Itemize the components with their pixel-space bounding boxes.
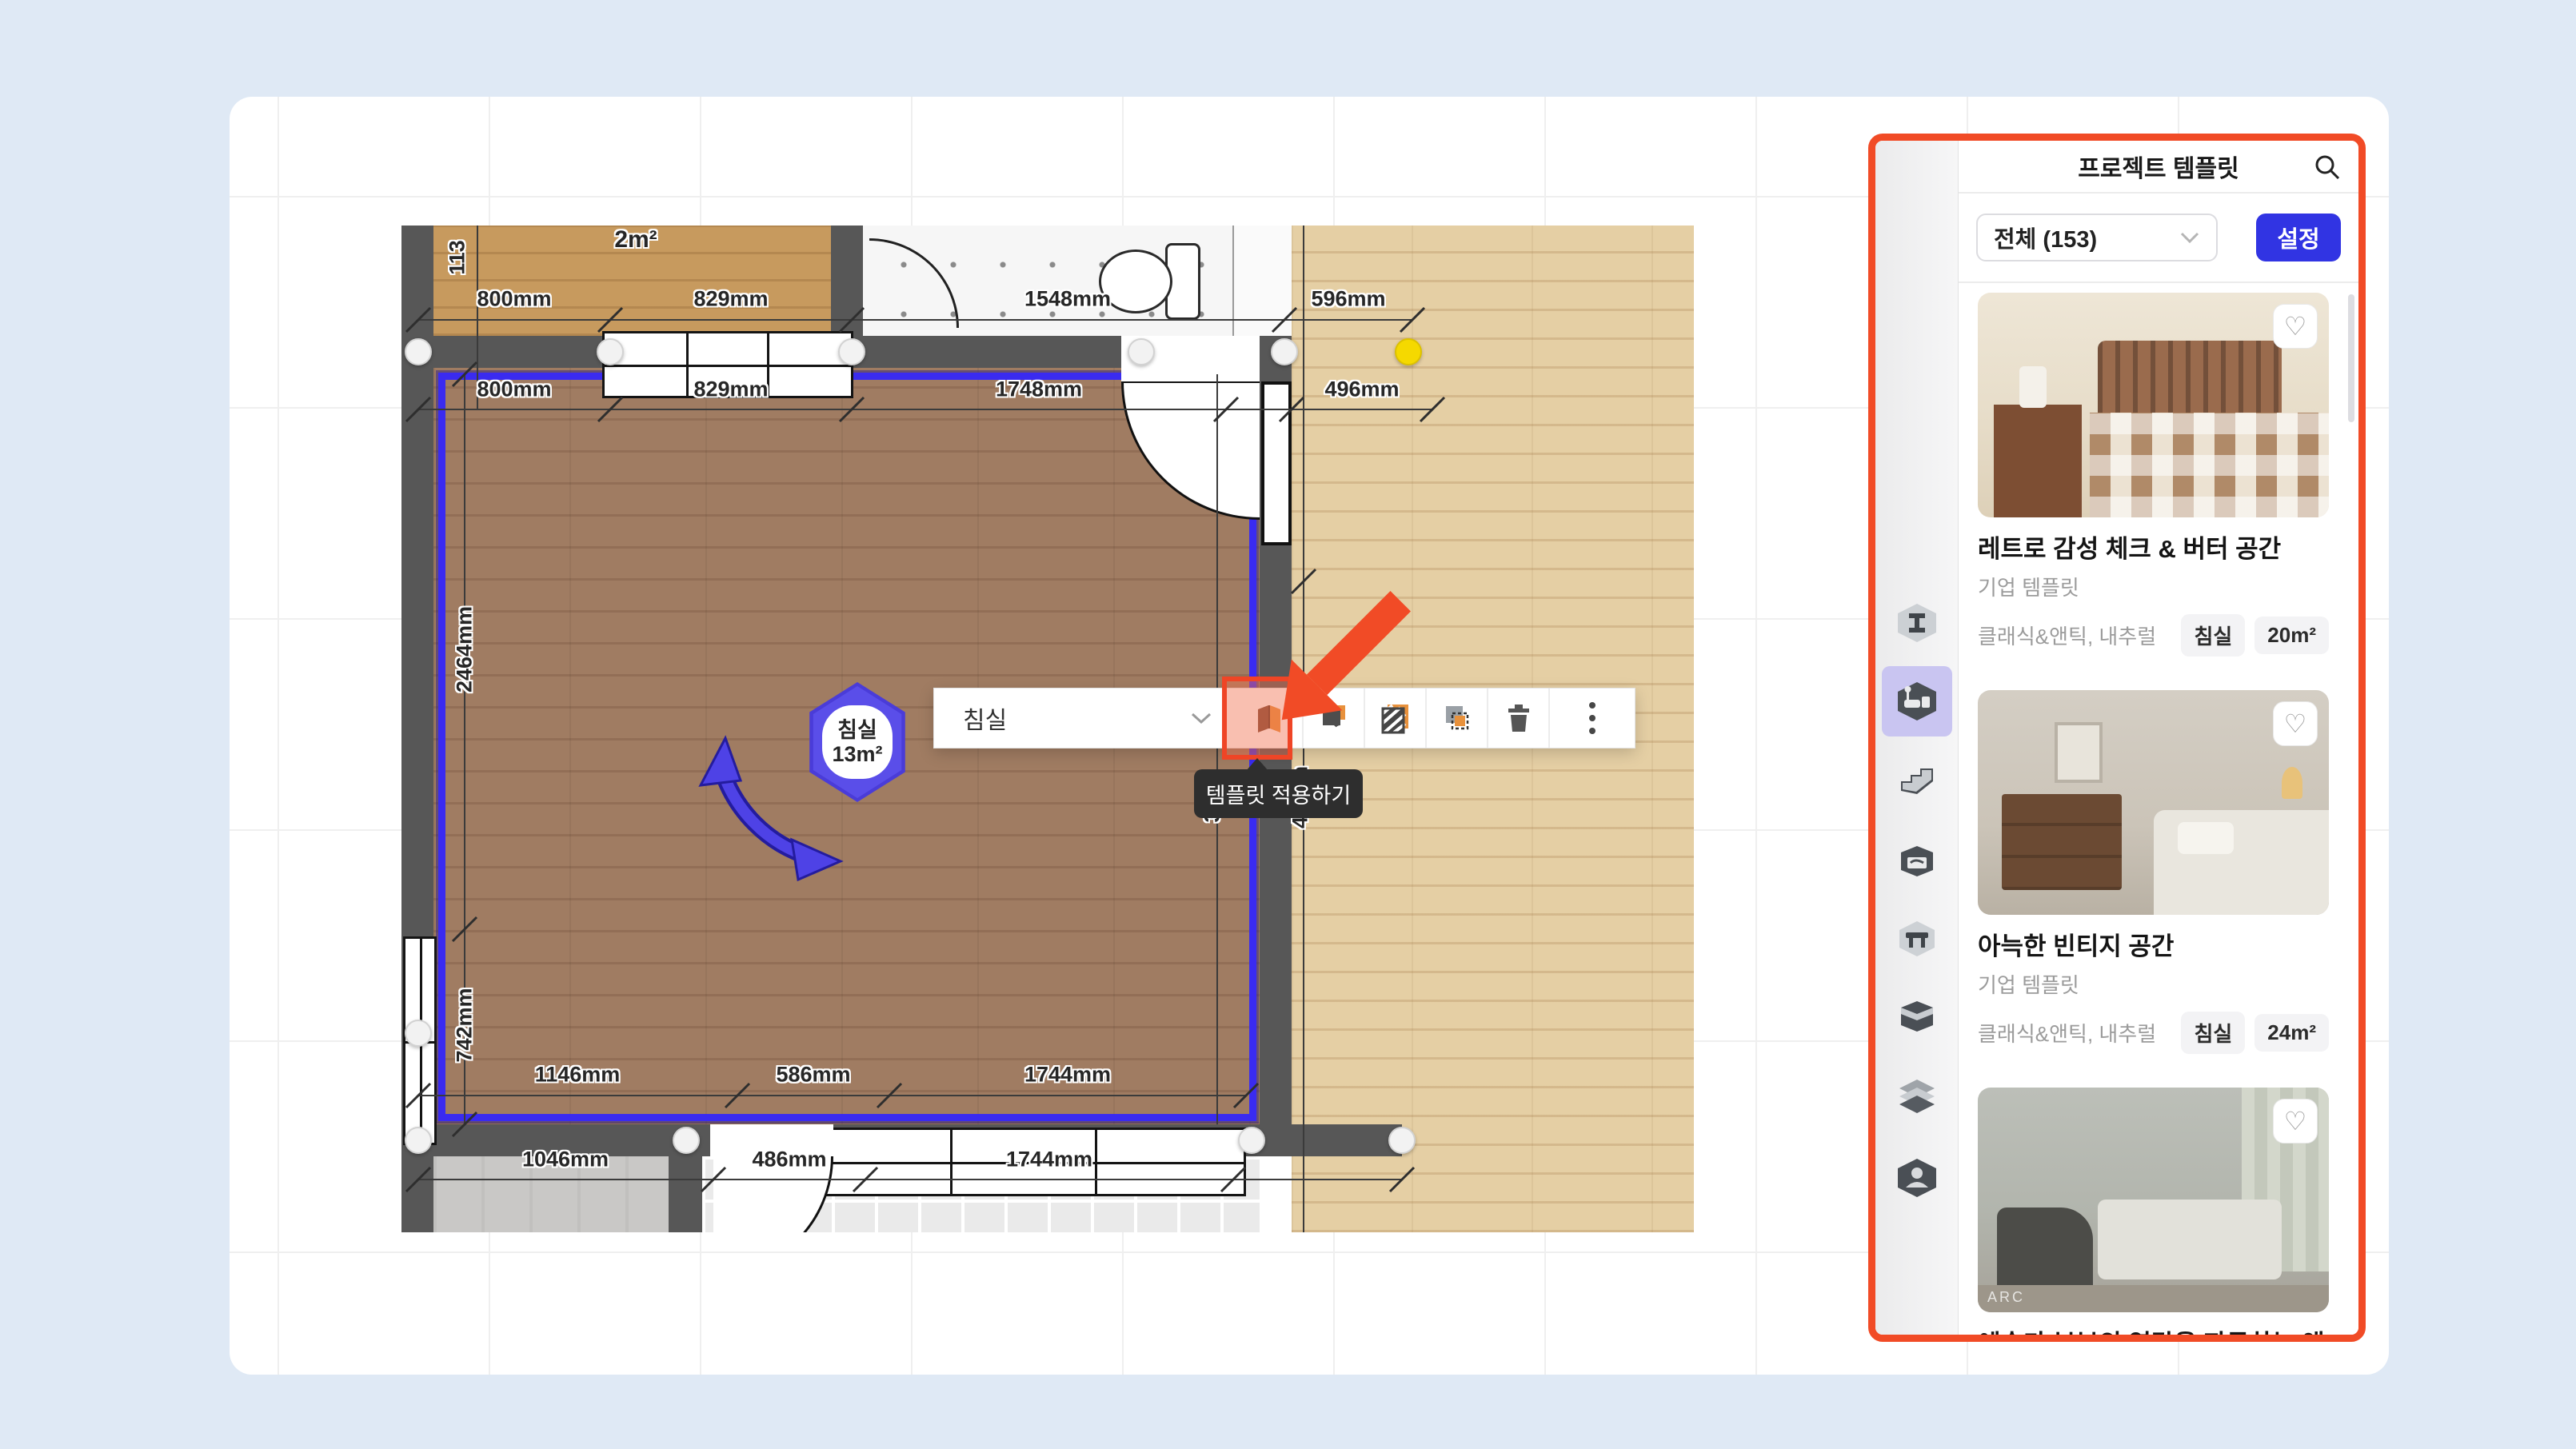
- dimension-label: 586mm: [776, 1063, 850, 1088]
- thumb-frame: [2055, 722, 2103, 783]
- layers-icon: [1895, 1073, 1939, 1118]
- room-badge[interactable]: 침실 13m²: [805, 682, 909, 802]
- wall-node[interactable]: [1128, 338, 1155, 365]
- room-type-badge: 침실: [2181, 614, 2245, 657]
- dimension-label: 829mm: [693, 287, 768, 312]
- chevron-down-icon: [1189, 711, 1213, 725]
- template-panel: 프로젝트 템플릿 전체 (153) 설정: [1868, 134, 2366, 1342]
- storage-box-icon: [1895, 995, 1939, 1040]
- build-material-icon: [1895, 601, 1939, 645]
- dimension-label: 1548mm: [1024, 287, 1111, 312]
- trash-icon: [1503, 702, 1535, 734]
- dimension-label: 1748mm: [996, 377, 1082, 402]
- template-title: 레트로 감성 체크 & 버터 공간: [1978, 533, 2329, 565]
- sidebar-item-stairs[interactable]: [1891, 756, 1943, 807]
- category-value: 전체 (153): [1994, 221, 2097, 254]
- material-icon: [1380, 702, 1412, 734]
- template-meta-row: 클래식&앤틱, 내추럴 침실 24m²: [1978, 1012, 2329, 1054]
- area-badge: 20m²: [2254, 617, 2329, 654]
- category-dropdown[interactable]: 전체 (153): [1976, 214, 2218, 261]
- thumb-bed: [2098, 1200, 2282, 1279]
- sidebar-item-room-template[interactable]: [1891, 676, 1943, 727]
- template-style: 클래식&앤틱, 내추럴: [1978, 1018, 2171, 1048]
- template-title: 아늑한 빈티지 공간: [1978, 931, 2329, 963]
- template-card[interactable]: ARC ♡ 예술가 부부의 영감을 자극하는 앤틱한 침실 기업 템플릿 클래식…: [1978, 1088, 2329, 1335]
- duplicate-icon: [1441, 702, 1473, 734]
- sidebar-item-build-material[interactable]: [1891, 597, 1943, 649]
- filter-row: 전체 (153) 설정: [1959, 194, 2358, 283]
- dimension-label: 486mm: [752, 1148, 826, 1172]
- duplicate-button[interactable]: [1425, 689, 1487, 748]
- template-subtitle: 기업 템플릿: [1978, 572, 2329, 601]
- thumb-lamp: [2282, 767, 2302, 799]
- wall-node[interactable]: [405, 1020, 432, 1047]
- more-options-button[interactable]: [1548, 689, 1635, 748]
- material-button[interactable]: [1364, 689, 1425, 748]
- room-name: 침실: [837, 718, 877, 742]
- template-card[interactable]: ♡ 아늑한 빈티지 공간 기업 템플릿 클래식&앤틱, 내추럴 침실 24m²: [1978, 690, 2329, 1054]
- scrollbar-thumb[interactable]: [2348, 294, 2354, 422]
- favorite-button[interactable]: ♡: [2273, 1099, 2318, 1144]
- wall-node[interactable]: [405, 338, 432, 365]
- sidebar-item-storage-box[interactable]: [1891, 992, 1943, 1043]
- template-thumbnail: ♡: [1978, 690, 2329, 915]
- favorite-button[interactable]: ♡: [2273, 304, 2318, 349]
- wall-node[interactable]: [597, 338, 624, 365]
- thumb-floor: [1978, 1285, 2329, 1312]
- favorite-button[interactable]: ♡: [2273, 701, 2318, 746]
- dimension-label: 596mm: [1311, 287, 1385, 312]
- sidebar-item-profile[interactable]: [1891, 1152, 1943, 1204]
- wall-node[interactable]: [673, 1127, 700, 1154]
- template-list[interactable]: ♡ 레트로 감성 체크 & 버터 공간 기업 템플릿 클래식&앤틱, 내추럴 침…: [1959, 283, 2358, 1335]
- sidebar-item-toolbox[interactable]: [1891, 835, 1943, 886]
- thumb-bed: [2090, 413, 2329, 517]
- template-title: 예술가 부부의 영감을 자극하는 앤틱한 침실: [1978, 1328, 2329, 1335]
- editor-window: 800mm 829mm 1548mm 596mm 800mm 829mm 174…: [230, 97, 2389, 1375]
- room-area: 13m²: [832, 742, 882, 766]
- sidebar-item-furniture[interactable]: [1891, 913, 1943, 964]
- template-thumbnail: ♡: [1978, 293, 2329, 517]
- panel-title: 프로젝트 템플릿: [2078, 149, 2239, 184]
- dimension-label: 1046mm: [522, 1148, 609, 1172]
- wall-node[interactable]: [1388, 1127, 1416, 1154]
- wall-node[interactable]: [838, 338, 865, 365]
- room-type-badge: 침실: [2181, 1012, 2245, 1054]
- dimension-label: 742mm: [453, 988, 477, 1062]
- dimension-label: 113: [445, 240, 470, 275]
- template-card[interactable]: ♡ 레트로 감성 체크 & 버터 공간 기업 템플릿 클래식&앤틱, 내추럴 침…: [1978, 293, 2329, 657]
- profile-icon: [1895, 1156, 1939, 1200]
- panel-header: 프로젝트 템플릿: [1959, 141, 2358, 194]
- template-subtitle: 기업 템플릿: [1978, 969, 2329, 999]
- dimension-label: 496mm: [1324, 377, 1399, 402]
- wall-node[interactable]: [1271, 338, 1298, 365]
- search-icon[interactable]: [2312, 152, 2342, 182]
- template-style: 클래식&앤틱, 내추럴: [1978, 621, 2171, 650]
- thumb-chair: [1997, 1207, 2093, 1295]
- thumb-nightstand: [1994, 405, 2082, 517]
- room-type-dropdown[interactable]: 침실: [934, 689, 1236, 748]
- chevron-down-icon: [2179, 231, 2200, 244]
- template-thumbnail: ARC ♡: [1978, 1088, 2329, 1312]
- thumbnail-watermark: ARC: [1987, 1289, 2025, 1306]
- room-type-value: 침실: [963, 701, 1007, 736]
- dimension-label: 1744mm: [1024, 1063, 1111, 1088]
- dimension-label: 829mm: [693, 377, 768, 402]
- dimension-label: 800mm: [477, 287, 551, 312]
- sidebar-item-layers[interactable]: [1891, 1070, 1943, 1121]
- app-root: { "colors": { "annotation_orange": "#f14…: [0, 0, 2576, 1449]
- kebab-menu-icon: [1588, 701, 1597, 736]
- toolbox-icon: [1895, 838, 1939, 883]
- area-badge: 24m²: [2254, 1014, 2329, 1052]
- wall-node[interactable]: [405, 1127, 432, 1154]
- delete-button[interactable]: [1487, 689, 1548, 748]
- dimension-label: 2464mm: [453, 606, 477, 693]
- dimension-label: 1146mm: [535, 1063, 621, 1088]
- thumb-lamp: [2019, 366, 2047, 408]
- dimension-label: 800mm: [477, 377, 551, 402]
- wall-node[interactable]: [1238, 1127, 1265, 1154]
- template-meta-row: 클래식&앤틱, 내추럴 침실 20m²: [1978, 614, 2329, 657]
- tooltip-text: 템플릿 적용하기: [1206, 778, 1351, 809]
- template-panel-content: 프로젝트 템플릿 전체 (153) 설정: [1959, 141, 2358, 1335]
- room-template-icon: [1895, 679, 1939, 724]
- thumb-pillow: [2178, 822, 2234, 854]
- sidebar-icon-strip: [1875, 141, 1959, 1335]
- wall-node-highlighted[interactable]: [1395, 338, 1422, 365]
- room-badge-label: 침실 13m²: [822, 705, 893, 779]
- thumb-dresser: [2002, 794, 2122, 890]
- settings-button[interactable]: 설정: [2256, 214, 2341, 261]
- stairs-icon: [1895, 759, 1939, 804]
- room-area-label: 2m²: [614, 226, 657, 253]
- dimension-label: 1744mm: [1006, 1148, 1092, 1172]
- furniture-icon: [1895, 916, 1939, 961]
- tooltip: 템플릿 적용하기: [1194, 769, 1363, 818]
